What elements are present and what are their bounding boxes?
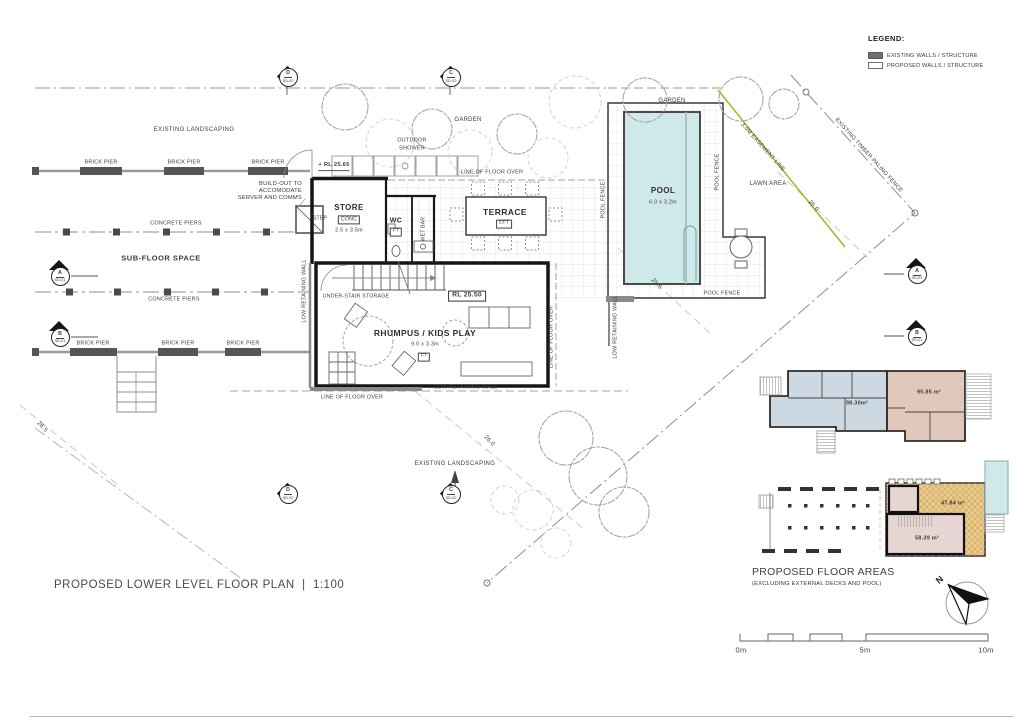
low-retaining-wall-bottom: LOW RETAINING WALL xyxy=(434,385,497,390)
buildout-note: BUILD-OUT TO ACCOMODATE SERVER AND COMMS xyxy=(228,181,302,202)
garden-label: GARDEN xyxy=(658,98,685,104)
brick-pier-label: BRICK PIER xyxy=(76,341,109,346)
section-marker-c-top: CSD-02 xyxy=(439,65,461,87)
section-marker-a-right: ASD-01 xyxy=(905,258,927,284)
section-marker-b-left: BSD-01 xyxy=(48,321,70,347)
pool-fence-bottom: POOL FENCE xyxy=(703,291,740,296)
garden-label: GARDEN xyxy=(454,117,481,123)
scale-0m: 0m xyxy=(736,646,747,654)
pool-retaining-stub xyxy=(606,296,634,346)
outdoor-shower-label: OUTDOOR xyxy=(397,138,426,143)
store-finish: CONC xyxy=(338,215,360,224)
wc-finish: FT xyxy=(390,228,402,237)
inset-lower-plan xyxy=(759,461,1008,556)
store-size: 2.5 x 3.5m xyxy=(335,228,363,233)
legend: LEGEND: EXISTING WALLS / STRUCTURE PROPO… xyxy=(868,34,983,72)
existing-wall-swatch xyxy=(868,52,883,59)
brick-pier-wall-lower xyxy=(32,348,310,412)
rl-25-65: + RL 25.65 xyxy=(318,163,349,171)
pool-fence-right: POOL FENCE xyxy=(715,153,720,190)
rhumpus-finish: FT xyxy=(418,353,430,362)
section-marker-d-bottom: DSD-02 xyxy=(276,482,298,504)
rl-25-50: RL 25.50 xyxy=(448,291,486,302)
sheet-scale: 1:100 xyxy=(313,579,344,591)
concrete-piers-label: CONCRETE PIERS xyxy=(150,221,201,226)
pool xyxy=(624,112,700,284)
outdoor-shower-label2: SHOWER xyxy=(399,146,425,151)
lawn-area-label: LAWN AREA xyxy=(749,181,786,187)
low-retaining-wall-left: LOW RETAINING WALL xyxy=(302,259,307,322)
area-lower-room: 58.39 m² xyxy=(915,536,939,542)
section-marker-c-bottom: CSD-02 xyxy=(439,482,461,504)
line-of-floor-over-top: LINE OF FLOOR OVER xyxy=(461,170,523,175)
existing-landscaping-top: EXISTING LANDSCAPING xyxy=(154,127,235,133)
section-marker-d-top: DSD-02 xyxy=(276,65,298,87)
rhumpus-label: RHUMPUS / KIDS PLAY xyxy=(374,329,476,338)
low-retaining-wall-pool: LOW RETAINING WALL xyxy=(613,295,618,358)
sub-floor-space-label: SUB-FLOOR SPACE xyxy=(121,254,200,262)
concrete-piers-label: CONCRETE PIERS xyxy=(148,297,199,302)
wet-bar-label: WET BAR xyxy=(422,217,427,241)
section-marker-a-left: ASD-01 xyxy=(48,260,70,286)
proposed-wall-swatch xyxy=(868,62,883,69)
terrace-finish: EFT xyxy=(496,220,512,229)
legend-heading: LEGEND: xyxy=(868,34,983,43)
pool-fence-left: POOL FENCE xyxy=(601,181,606,218)
line-of-floor-over-bottom: LINE OF FLOOR OVER xyxy=(321,395,383,400)
brick-pier-label: BRICK PIER xyxy=(161,341,194,346)
plan-linework xyxy=(0,0,1024,725)
existing-landscaping-bottom: EXISTING LANDSCAPING xyxy=(415,461,496,467)
inset-upper-plan xyxy=(760,371,991,453)
line-of-floor-over-right: LINE OF FLOOR OVER xyxy=(549,306,554,368)
rhumpus-size: 9.0 x 3.3m xyxy=(411,342,439,347)
pool-label: POOL xyxy=(651,187,675,195)
area-upper-left: 98.30m² xyxy=(846,401,868,407)
brick-pier-label: BRICK PIER xyxy=(251,160,284,165)
floor-areas-subheading: (EXCLUDING EXTERNAL DECKS AND POOL) xyxy=(752,581,882,587)
brick-pier-label: BRICK PIER xyxy=(84,160,117,165)
legend-existing-label: EXISTING WALLS / STRUCTURE xyxy=(887,53,978,59)
brick-pier-wall-upper xyxy=(32,167,310,175)
area-upper-right: 95.85 m² xyxy=(917,390,941,396)
terrace-label: TERRACE xyxy=(483,208,527,217)
floor-areas-heading: PROPOSED FLOOR AREAS xyxy=(752,566,895,578)
wc-label: WC xyxy=(390,218,402,225)
pool-size: 6.0 x 3.2m xyxy=(649,200,677,205)
scale-10m: 10m xyxy=(978,646,993,654)
step-label: STEP xyxy=(313,217,327,222)
section-marker-b-right: BSD-01 xyxy=(905,320,927,346)
outdoor-shower-tiles xyxy=(332,156,478,176)
legend-proposed-label: PROPOSED WALLS / STRUCTURE xyxy=(887,63,983,69)
brick-pier-label: BRICK PIER xyxy=(167,160,200,165)
area-lower-deck: 47.84 m² xyxy=(941,501,965,507)
under-stair-label: UNDER-STAIR STORAGE xyxy=(323,294,390,299)
floor-plan-sheet: LEGEND: EXISTING WALLS / STRUCTURE PROPO… xyxy=(0,0,1024,725)
scale-5m: 5m xyxy=(860,646,871,654)
scale-bar xyxy=(740,634,988,641)
brick-pier-label: BRICK PIER xyxy=(226,341,259,346)
north-arrow xyxy=(946,582,990,624)
sheet-title: PROPOSED LOWER LEVEL FLOOR PLAN | 1:100 xyxy=(54,579,344,591)
store-label: STORE xyxy=(334,204,363,212)
